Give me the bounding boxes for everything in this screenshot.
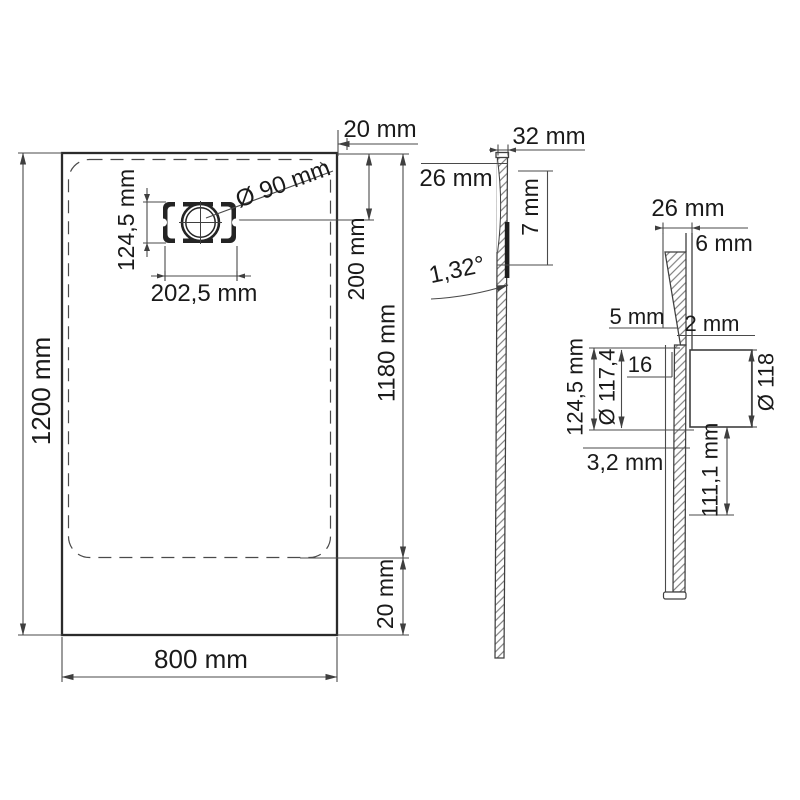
side-drain-recess [505, 222, 510, 278]
plan-width-dim-label: 800 mm [154, 644, 248, 674]
section-flange-dia-label: Ø 118 [754, 353, 779, 411]
side-recess-dim-label: 7 mm [517, 178, 543, 236]
section-floor-dim-label: 5 mm [610, 304, 665, 329]
shower-tray-drawing: 1200 mm 800 mm 20 mm 200 mm 1180 mm 20 m… [0, 0, 800, 800]
side-profile-view: 32 mm 26 mm 7 mm 1,32° [419, 123, 585, 658]
section-wall-dim-label: 6 mm [695, 230, 753, 256]
plan-length-dim-label: 1200 mm [26, 337, 56, 445]
section-gap-dim-label: 2 mm [685, 311, 740, 336]
side-angle-label: 1,32° [427, 251, 488, 289]
plan-drain-plate-height-label: 124,5 mm [113, 169, 139, 271]
section-bottom-dim-label: 3,2 mm [587, 449, 664, 475]
plan-drain-center-dim-label: 200 mm [343, 217, 369, 300]
section-hole-dia-label: Ø 117,4 [595, 349, 620, 426]
section-pipe-dim-label: 111,1 mm [698, 423, 723, 518]
plan-edge-top-dim-label: 20 mm [343, 116, 416, 143]
section-tray-wedge [665, 252, 686, 345]
side-thickness-dim-label: 32 mm [512, 123, 585, 150]
section-rim-dim-label: 26 mm [651, 195, 724, 222]
section-recess-dia-label: 124,5 mm [563, 338, 588, 436]
section-plate-dim-label: 16 [628, 352, 652, 377]
plan-inner-length-dim-label: 1180 mm [374, 304, 401, 402]
drain-plate [159, 201, 240, 244]
drain-section-view: 26 mm 6 mm 5 mm 2 mm 124,5 mm Ø 117,4 16 [563, 195, 779, 599]
section-drain-flange [690, 350, 752, 427]
plan-drain-hole-dia-label: Ø 90 mm [232, 154, 334, 213]
plan-drain-plate-width-label: 202,5 mm [151, 280, 258, 307]
plan-view: 1200 mm 800 mm 20 mm 200 mm 1180 mm 20 m… [18, 116, 418, 682]
side-rim-dim-label: 26 mm [419, 165, 492, 192]
section-pipe-wall [673, 345, 686, 592]
technical-drawing-page: 1200 mm 800 mm 20 mm 200 mm 1180 mm 20 m… [0, 0, 800, 800]
plan-edge-bottom-dim-label: 20 mm [372, 559, 398, 629]
